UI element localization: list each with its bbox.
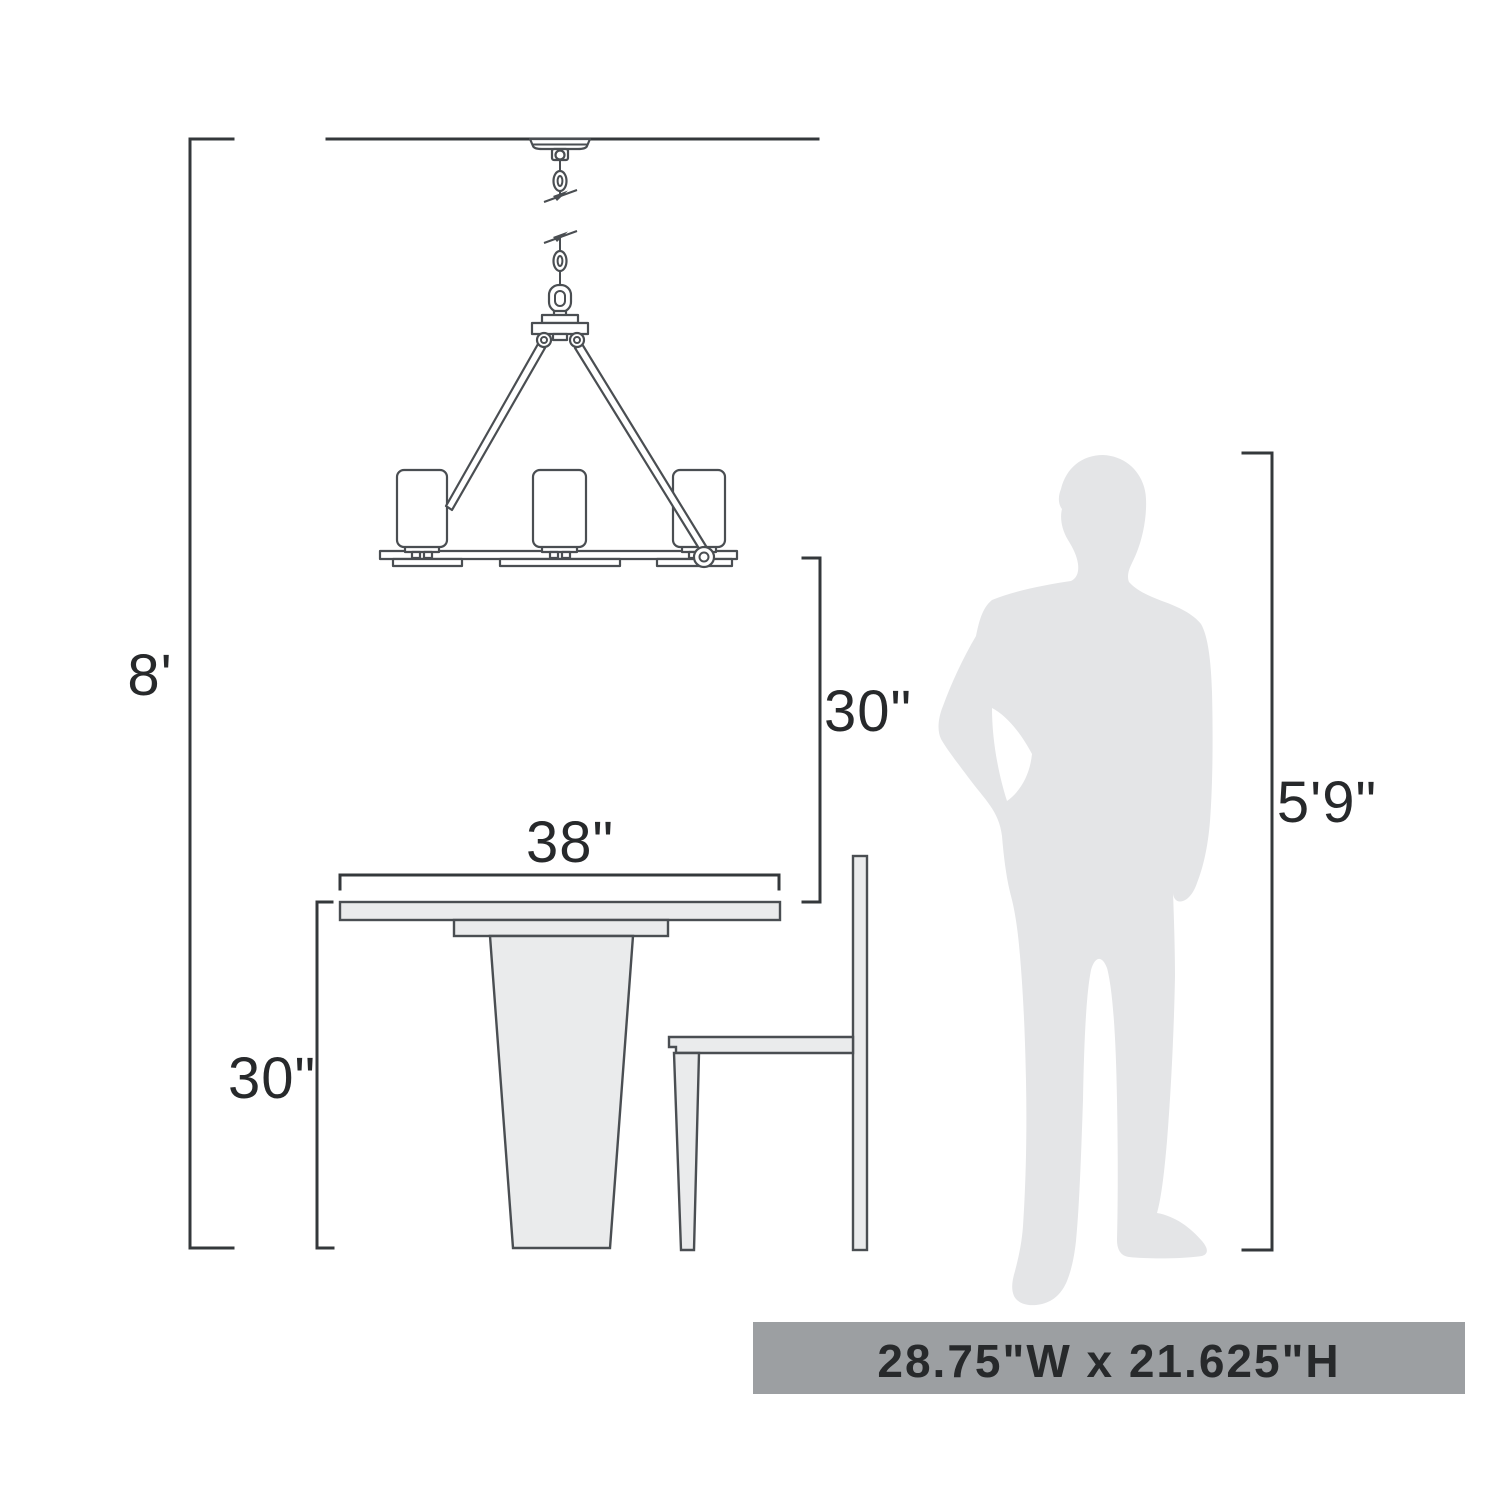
chain-link-icon — [554, 251, 567, 271]
person-height-label: 5'9" — [1277, 770, 1377, 835]
glass-shade-center — [533, 470, 586, 547]
dimension-table-width: 38" — [340, 810, 779, 889]
dimension-table-height: 30" — [228, 902, 333, 1248]
size-banner-text: 28.75"W x 21.625"H — [877, 1335, 1340, 1387]
chair-seat — [669, 1037, 853, 1053]
glass-shade-left — [397, 470, 447, 547]
suspension-arm-right — [575, 344, 709, 555]
chair-front-leg — [674, 1053, 699, 1250]
ceiling-height-label: 8' — [127, 643, 172, 708]
suspension-arm-left — [446, 344, 545, 510]
dining-table — [340, 902, 780, 1248]
person-silhouette — [939, 455, 1213, 1305]
chair-back — [853, 856, 867, 1250]
diagram-canvas: 8' 30" 38" 30" — [0, 0, 1500, 1500]
finial-loop — [549, 285, 571, 312]
table-pedestal — [490, 936, 633, 1248]
chandelier — [380, 139, 737, 567]
ring-attachment-loop — [694, 547, 714, 567]
dimension-diagram: 8' 30" 38" 30" — [0, 0, 1500, 1500]
dimension-chandelier-to-table: 30" — [803, 558, 912, 902]
table-height-label: 30" — [228, 1046, 316, 1111]
size-banner: 28.75"W x 21.625"H — [753, 1322, 1465, 1394]
tabletop — [340, 902, 780, 920]
chain-link-icon — [554, 171, 567, 191]
table-width-label: 38" — [526, 810, 614, 875]
hub-top — [542, 315, 578, 323]
table-apron — [454, 920, 668, 936]
chandelier-to-table-label: 30" — [824, 679, 912, 744]
dimension-ceiling-height: 8' — [127, 139, 233, 1248]
dimension-person-height: 5'9" — [1243, 453, 1377, 1250]
